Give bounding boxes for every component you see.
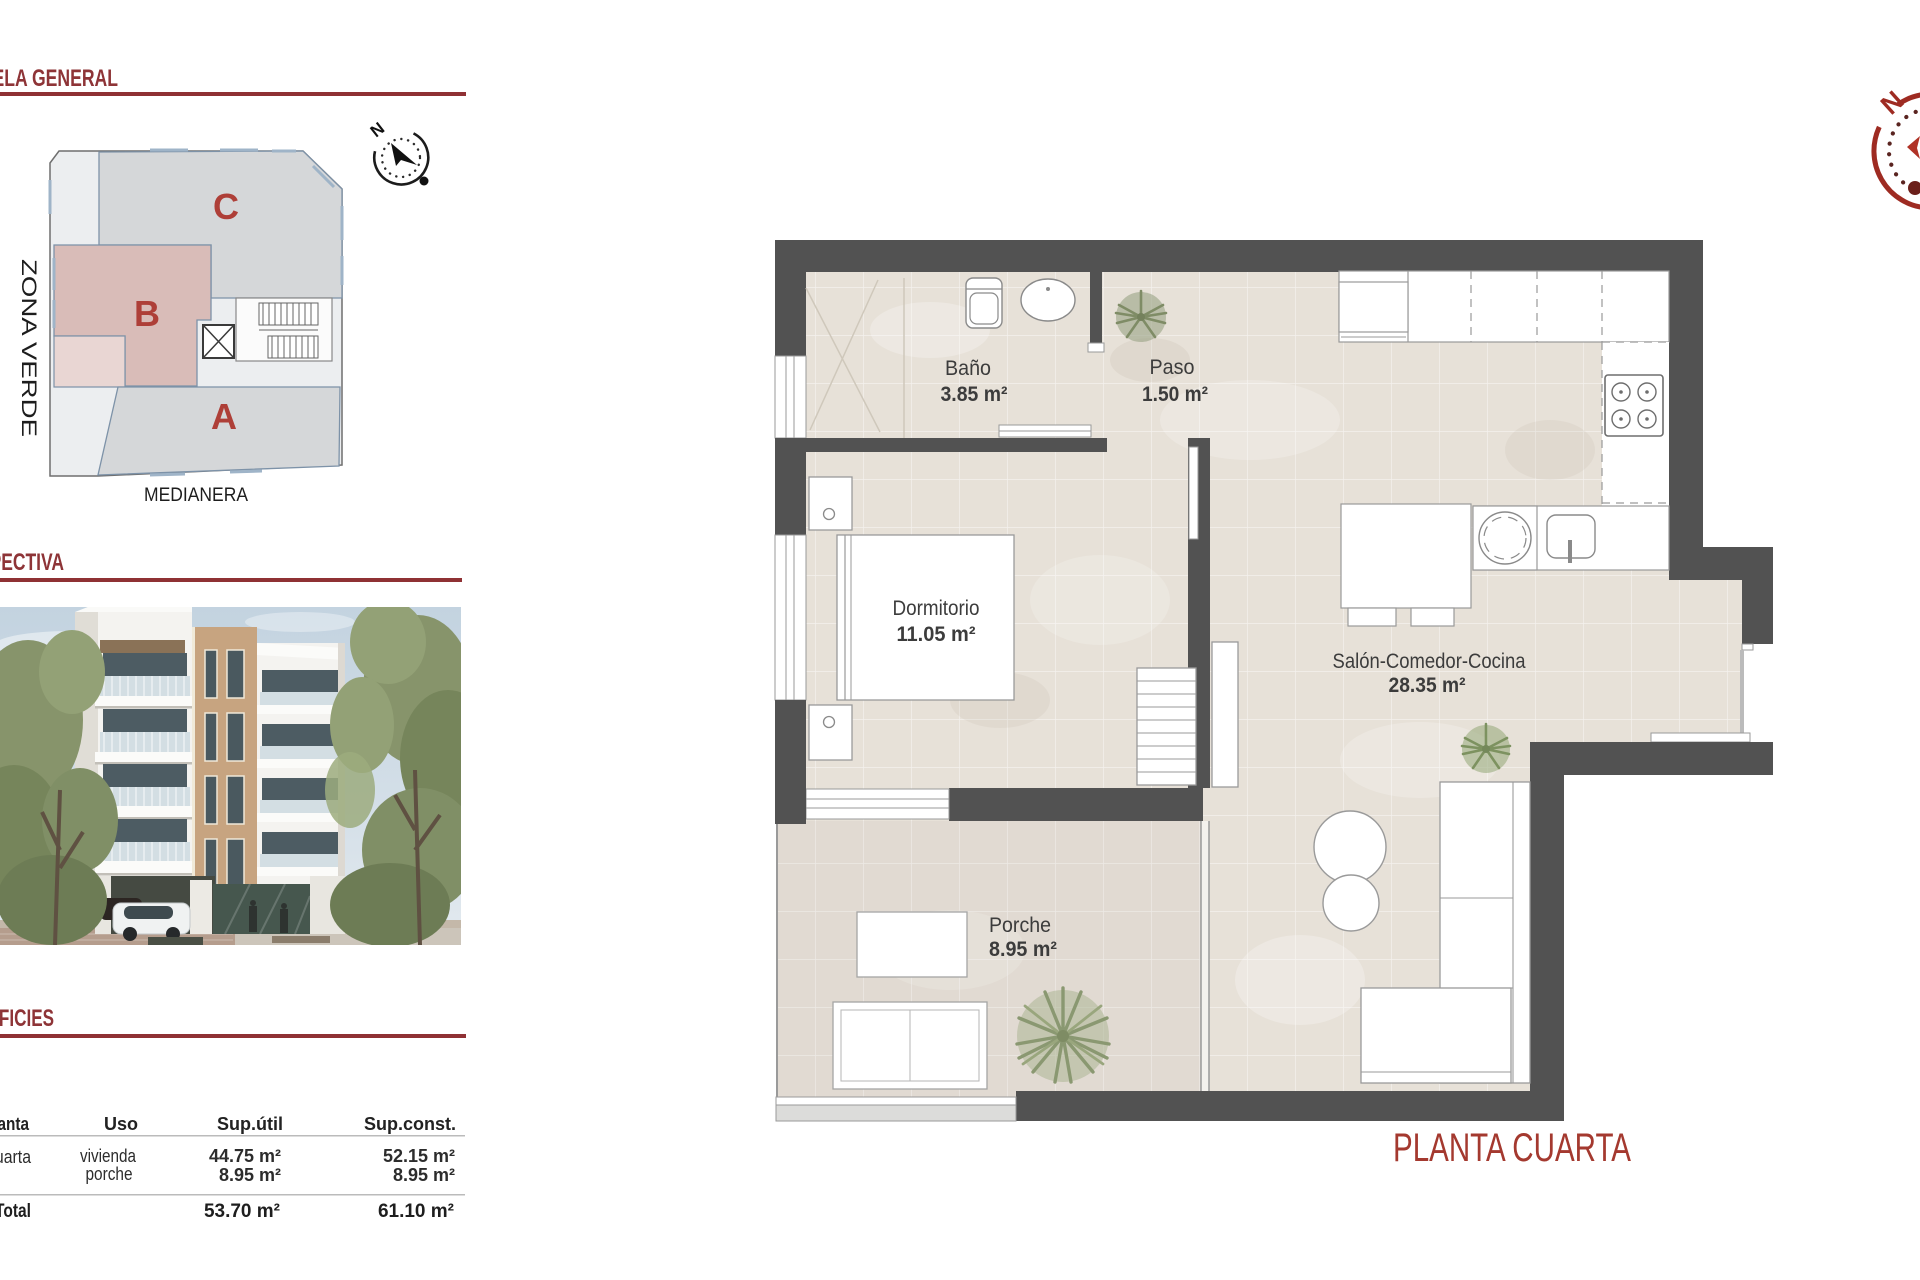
svg-text:44.75 m²: 44.75 m²	[209, 1146, 281, 1166]
svg-text:Sup.const.: Sup.const.	[364, 1114, 456, 1134]
svg-text:PLANTA CUARTA: PLANTA CUARTA	[1393, 1126, 1631, 1170]
svg-text:52.15 m²: 52.15 m²	[383, 1146, 455, 1166]
svg-text:Uso: Uso	[104, 1114, 138, 1134]
svg-text:N: N	[1875, 85, 1910, 120]
svg-text:Porche: Porche	[989, 914, 1051, 937]
svg-text:Salón-Comedor-Cocina: Salón-Comedor-Cocina	[1333, 650, 1526, 673]
svg-text:MEDIANERA: MEDIANERA	[144, 485, 248, 506]
svg-text:A: A	[211, 396, 237, 437]
svg-text:Planta: Planta	[0, 1114, 30, 1134]
svg-text:ZONA VERDE: ZONA VERDE	[17, 259, 40, 437]
svg-text:B: B	[134, 293, 160, 334]
svg-text:Baño: Baño	[945, 357, 991, 380]
svg-text:porche: porche	[86, 1164, 133, 1184]
svg-text:8.95 m²: 8.95 m²	[989, 938, 1057, 961]
svg-text:PERSPECTIVA: PERSPECTIVA	[0, 549, 64, 576]
svg-text:53.70 m²: 53.70 m²	[204, 1201, 280, 1222]
svg-text:3.85 m²: 3.85 m²	[941, 383, 1008, 406]
svg-text:1.50 m²: 1.50 m²	[1142, 383, 1208, 406]
svg-text:Paso: Paso	[1150, 356, 1195, 379]
svg-text:Dormitorio: Dormitorio	[893, 597, 980, 620]
svg-text:Sup.útil: Sup.útil	[217, 1114, 283, 1134]
svg-text:cuarta: cuarta	[0, 1147, 32, 1167]
svg-text:8.95 m²: 8.95 m²	[393, 1165, 455, 1185]
svg-text:Total: Total	[0, 1201, 31, 1222]
svg-text:SUPERFICIES: SUPERFICIES	[0, 1005, 54, 1032]
svg-text:8.95 m²: 8.95 m²	[219, 1165, 281, 1185]
svg-text:C: C	[213, 186, 239, 227]
svg-text:28.35 m²: 28.35 m²	[1389, 674, 1466, 697]
svg-text:vivienda: vivienda	[80, 1146, 137, 1166]
svg-text:61.10 m²: 61.10 m²	[378, 1201, 454, 1222]
svg-text:N: N	[367, 119, 388, 142]
svg-text:11.05 m²: 11.05 m²	[897, 623, 976, 646]
svg-text:PARCELA GENERAL: PARCELA GENERAL	[0, 65, 118, 92]
